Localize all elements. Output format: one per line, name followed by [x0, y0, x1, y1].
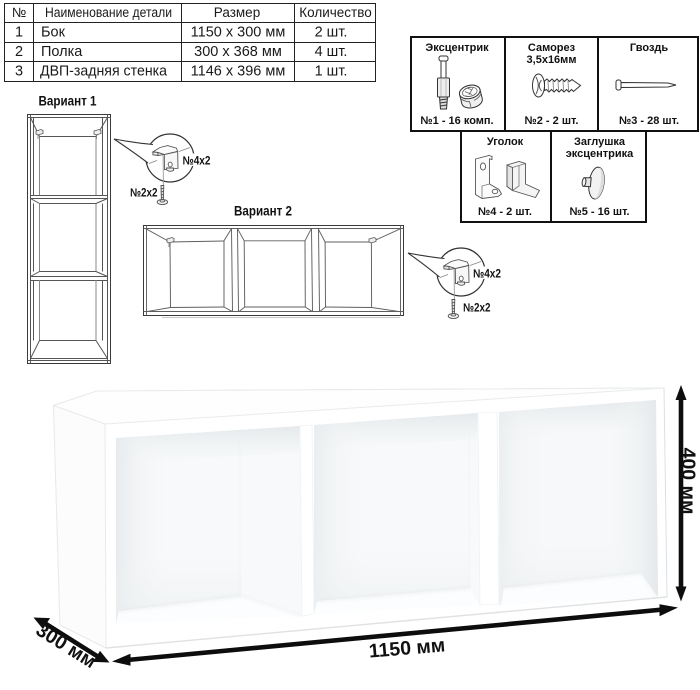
svg-text:Бок: Бок — [41, 24, 66, 40]
svg-text:1146 х 396 мм: 1146 х 396 мм — [191, 63, 286, 79]
svg-text:Вариант 1: Вариант 1 — [39, 94, 97, 109]
svg-text:1150 х 300 мм: 1150 х 300 мм — [191, 24, 286, 40]
svg-text:№2х2: №2х2 — [130, 186, 158, 200]
svg-text:Полка: Полка — [41, 44, 83, 60]
svg-text:300 х 368 мм: 300 х 368 мм — [194, 44, 282, 60]
svg-text:400 мм: 400 мм — [677, 448, 699, 515]
svg-text:№: № — [12, 5, 26, 20]
svg-text:№4х2: №4х2 — [183, 154, 211, 168]
svg-text:4 шт.: 4 шт. — [315, 44, 348, 60]
svg-text:1: 1 — [15, 24, 23, 40]
svg-text:Наименование детали: Наименование детали — [45, 5, 172, 20]
svg-text:1150 мм: 1150 мм — [368, 634, 446, 662]
svg-text:Размер: Размер — [214, 5, 260, 20]
svg-text:ДВП-задняя стенка: ДВП-задняя стенка — [40, 63, 168, 79]
svg-text:Количество: Количество — [299, 5, 372, 20]
svg-text:№4х2: №4х2 — [473, 267, 501, 281]
svg-text:1 шт.: 1 шт. — [315, 63, 348, 79]
svg-text:2: 2 — [15, 44, 23, 60]
svg-text:3: 3 — [15, 63, 23, 79]
svg-text:2 шт.: 2 шт. — [315, 24, 348, 40]
svg-text:Вариант 2: Вариант 2 — [234, 204, 292, 219]
svg-text:№2х2: №2х2 — [463, 301, 491, 315]
